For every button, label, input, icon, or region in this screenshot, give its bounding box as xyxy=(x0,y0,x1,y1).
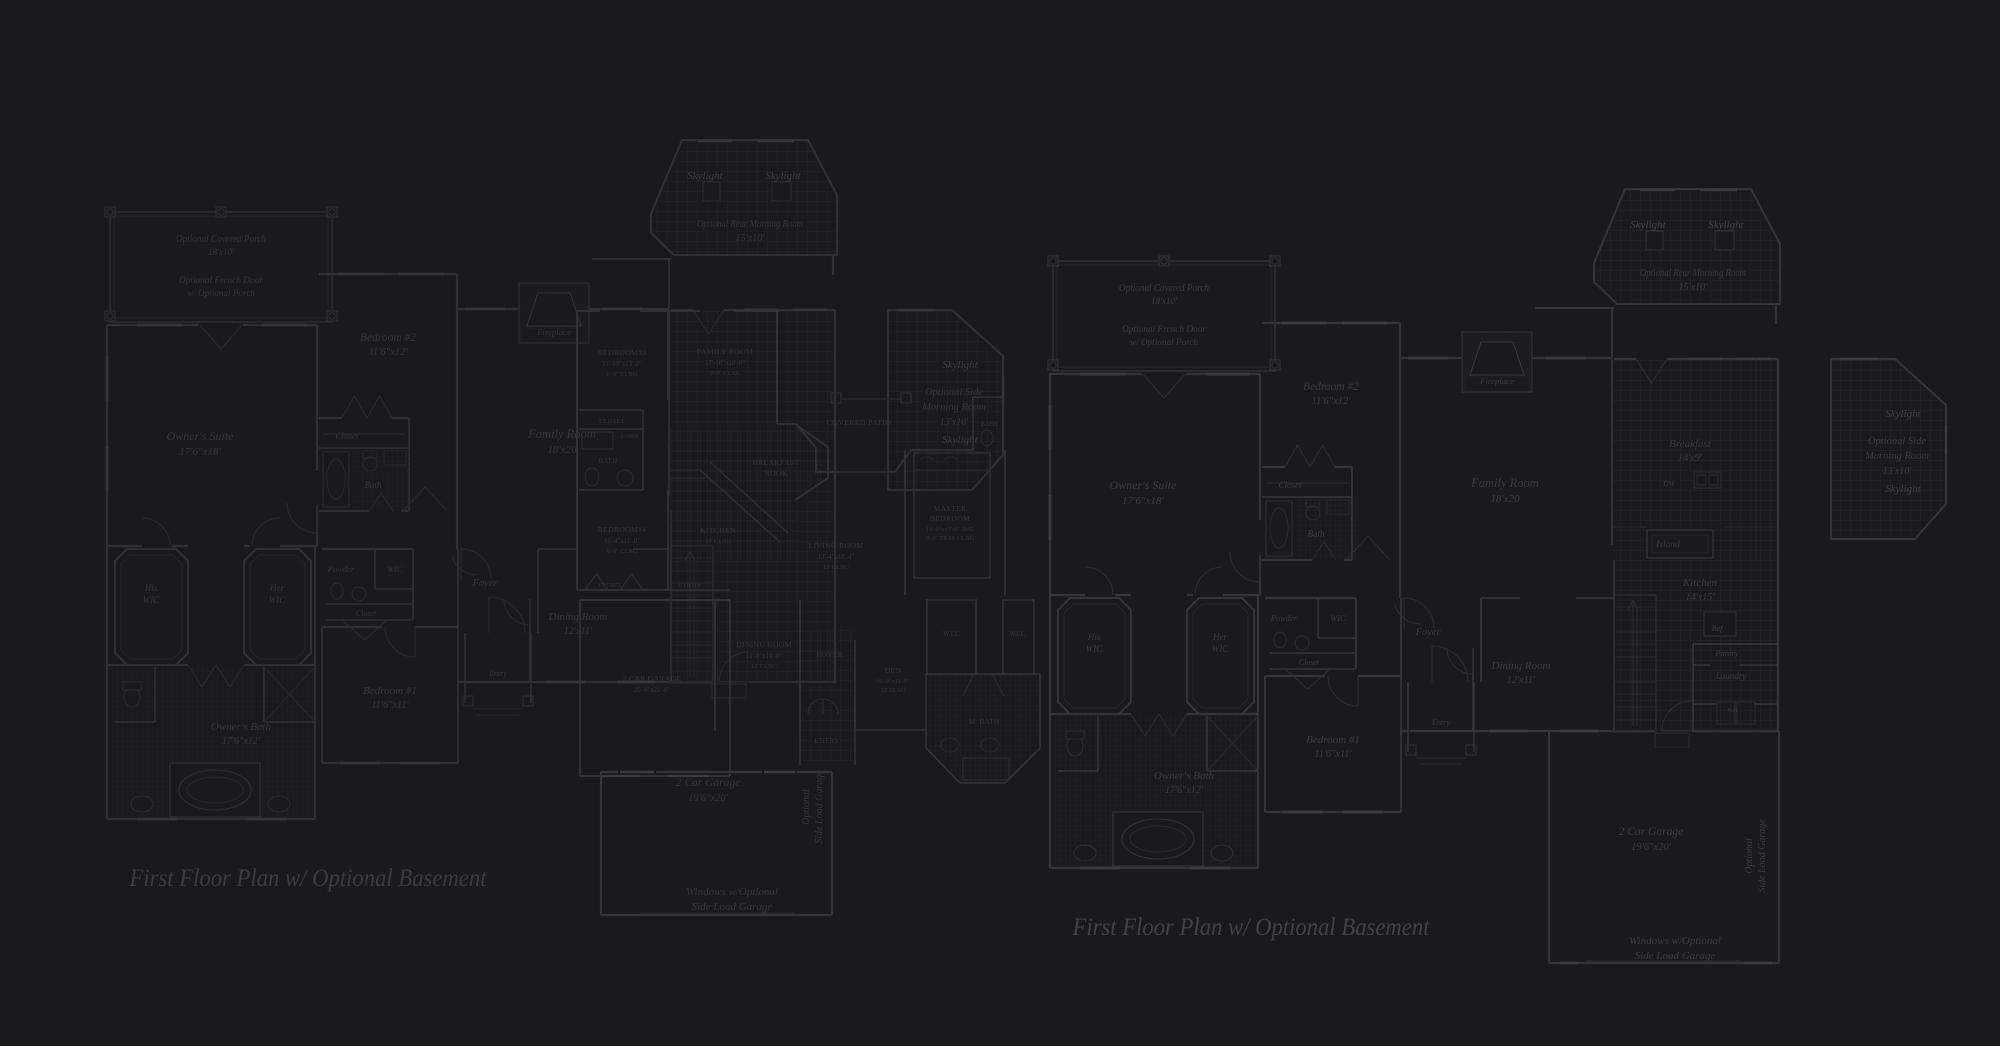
svg-text:BATH: BATH xyxy=(599,458,618,465)
svg-text:10' CLNG: 10' CLNG xyxy=(705,538,732,545)
svg-text:MASTER: MASTER xyxy=(934,504,968,513)
svg-text:BEDROOM#3: BEDROOM#3 xyxy=(598,348,647,357)
svg-text:ENTRY: ENTRY xyxy=(814,737,840,745)
svg-text:2 CAR GARAGE: 2 CAR GARAGE xyxy=(622,674,681,683)
svg-text:DINING ROOM: DINING ROOM xyxy=(736,640,792,649)
svg-text:NOOK: NOOK xyxy=(764,469,788,478)
svg-text:CLOSET: CLOSET xyxy=(599,583,622,589)
svg-text:12' CLNG: 12' CLNG xyxy=(751,663,778,670)
svg-text:M. BATH: M. BATH xyxy=(969,718,1000,726)
svg-text:20'-0"x21'-0": 20'-0"x21'-0" xyxy=(634,687,671,694)
svg-text:BEDROOM#4: BEDROOM#4 xyxy=(598,525,647,534)
svg-text:9'-0" CLNG: 9'-0" CLNG xyxy=(607,548,638,555)
svg-text:W.I.C.: W.I.C. xyxy=(943,631,961,638)
svg-text:9'-0" TRAY CLNG: 9'-0" TRAY CLNG xyxy=(926,535,975,542)
svg-text:BATH: BATH xyxy=(981,421,998,428)
svg-text:10'-0"x11'-0": 10'-0"x11'-0" xyxy=(876,678,910,685)
svg-text:W.I.C.: W.I.C. xyxy=(1009,631,1027,638)
svg-text:UTILITY: UTILITY xyxy=(678,583,702,589)
svg-text:BEDROOM: BEDROOM xyxy=(930,514,971,523)
svg-text:DEN: DEN xyxy=(885,666,902,675)
svg-text:13'-0"x17'-0" AVG: 13'-0"x17'-0" AVG xyxy=(926,526,974,533)
svg-text:9'-0" CLNG: 9'-0" CLNG xyxy=(607,371,638,378)
svg-text:LIVING ROOM: LIVING ROOM xyxy=(809,541,864,550)
svg-text:9'-0" CLNG: 9'-0" CLNG xyxy=(710,370,741,377)
svg-text:11'-4"x11'-0": 11'-4"x11'-0" xyxy=(604,538,640,545)
svg-text:CLOSET: CLOSET xyxy=(599,418,625,425)
svg-text:FOYER: FOYER xyxy=(817,650,844,659)
svg-text:COVERED PATIO: COVERED PATIO xyxy=(827,418,892,427)
svg-text:13'-4"x18'-4": 13'-4"x18'-4" xyxy=(818,554,855,561)
svg-text:11'-10"x13'-0": 11'-10"x13'-0" xyxy=(602,361,642,368)
svg-text:17'-10"x20'-0": 17'-10"x20'-0" xyxy=(705,360,745,367)
svg-text:12' CLNG: 12' CLNG xyxy=(823,564,850,571)
svg-text:11'-0"x14'-0": 11'-0"x14'-0" xyxy=(746,653,782,660)
svg-text:KITCHEN: KITCHEN xyxy=(700,526,736,535)
svg-text:12' CLNG: 12' CLNG xyxy=(881,688,906,694)
svg-text:BREAKFAST: BREAKFAST xyxy=(753,458,800,467)
svg-text:FAMILY ROOM: FAMILY ROOM xyxy=(697,347,753,356)
svg-text:LINEN: LINEN xyxy=(621,434,639,440)
